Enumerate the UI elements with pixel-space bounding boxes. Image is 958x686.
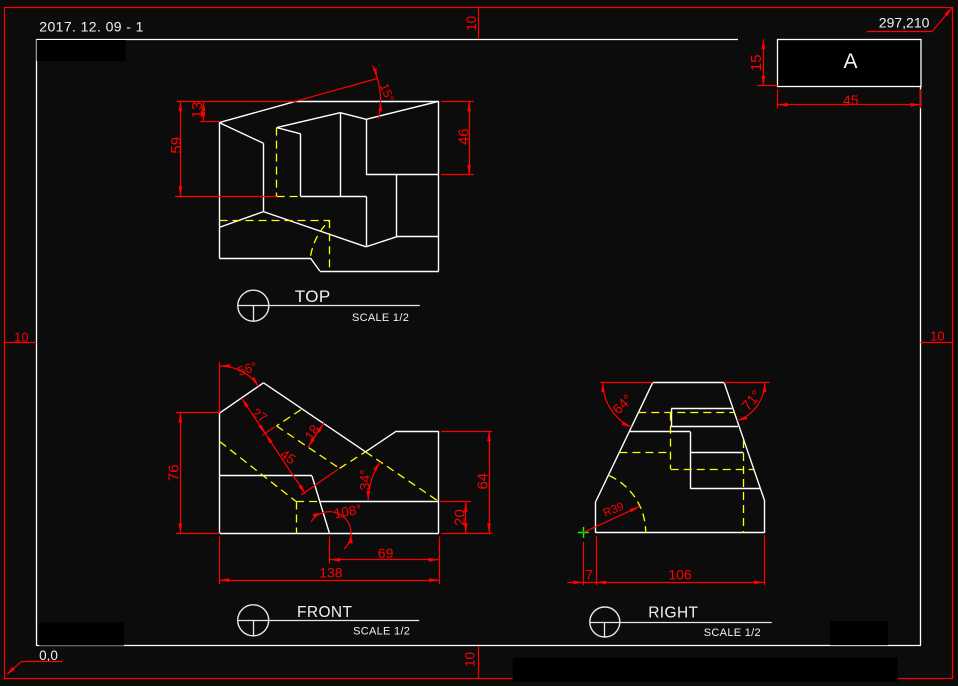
- svg-text:76: 76: [165, 464, 182, 481]
- svg-text:SCALE 1/2: SCALE 1/2: [704, 627, 761, 639]
- svg-text:SCALE 1/2: SCALE 1/2: [353, 626, 410, 638]
- svg-text:45: 45: [843, 92, 859, 108]
- svg-text:34°: 34°: [357, 469, 373, 490]
- svg-text:SCALE 1/2: SCALE 1/2: [352, 312, 409, 324]
- svg-text:2017. 12. 09 - 1: 2017. 12. 09 - 1: [39, 18, 143, 34]
- svg-text:FRONT: FRONT: [297, 604, 353, 621]
- svg-text:64: 64: [475, 473, 492, 490]
- svg-text:TOP: TOP: [295, 287, 331, 306]
- svg-text:106: 106: [668, 567, 692, 583]
- svg-text:59: 59: [168, 137, 185, 154]
- svg-text:13: 13: [189, 102, 206, 119]
- svg-text:10: 10: [14, 330, 28, 345]
- svg-text:7: 7: [585, 567, 593, 583]
- svg-text:138: 138: [319, 565, 343, 581]
- svg-text:20: 20: [452, 509, 469, 526]
- svg-text:10: 10: [930, 329, 944, 344]
- svg-text:46: 46: [456, 128, 473, 145]
- svg-text:10: 10: [463, 652, 478, 667]
- svg-text:10: 10: [464, 16, 479, 31]
- svg-text:297,210: 297,210: [879, 15, 930, 31]
- svg-text:69: 69: [378, 545, 394, 561]
- svg-text:RIGHT: RIGHT: [648, 605, 698, 622]
- svg-text:A: A: [843, 50, 857, 73]
- svg-text:15: 15: [748, 54, 765, 71]
- svg-text:0,0: 0,0: [39, 648, 58, 663]
